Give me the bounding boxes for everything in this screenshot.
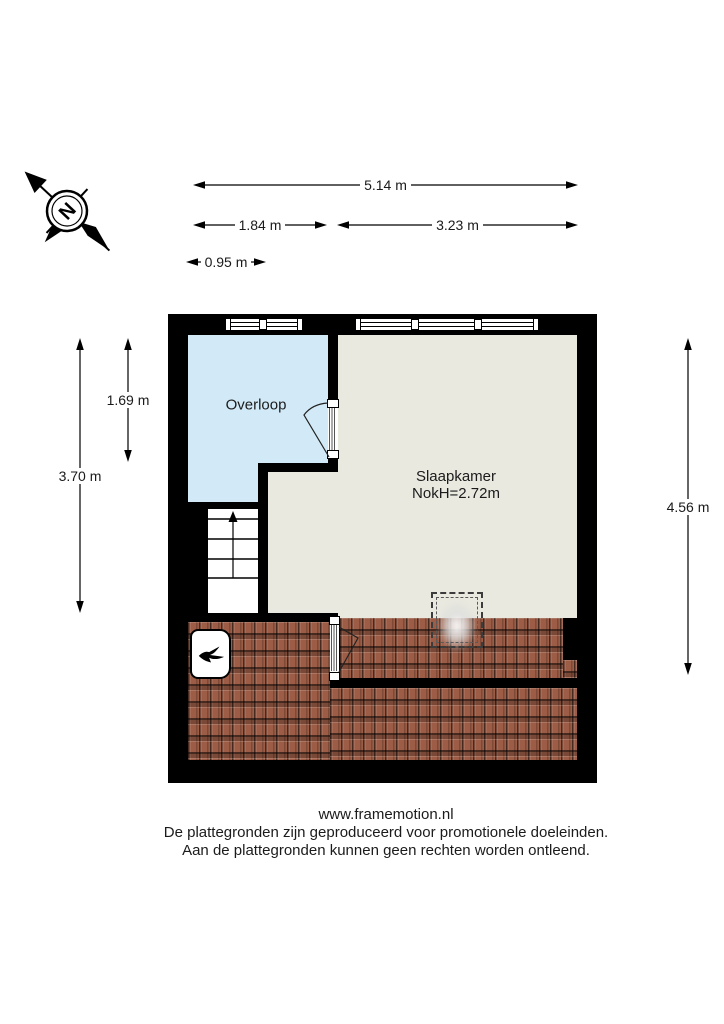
room-label-slaapkamer: Slaapkamer NokH=2.72m — [412, 468, 500, 502]
dim-label: 1.84 m — [235, 217, 286, 233]
footer-website: www.framemotion.nl — [164, 806, 608, 824]
dim-label: 5.14 m — [360, 177, 411, 193]
dim-label: 0.95 m — [201, 254, 252, 270]
slaapkamer-name: Slaapkamer — [412, 468, 500, 485]
dim-width-slaapkamer: 3.23 m — [337, 217, 578, 233]
slaapkamer-ridge-height: NokH=2.72m — [412, 485, 500, 502]
compass-icon: N — [5, 149, 129, 273]
dim-label: 3.70 m — [55, 468, 106, 484]
door-swing-overlay — [168, 314, 597, 783]
dim-height-overloop: 1.69 m — [88, 338, 168, 462]
dim-label: 3.23 m — [432, 217, 483, 233]
skylight-inner-frame — [436, 597, 478, 643]
skylight-dormer — [431, 592, 483, 648]
dim-height-right: 4.56 m — [648, 338, 724, 675]
footer: www.framemotion.nl De plattegronden zijn… — [164, 806, 608, 860]
footer-disclaimer-1: De plattegronden zijn geproduceerd voor … — [164, 824, 608, 842]
dim-width-overloop: 1.84 m — [193, 217, 327, 233]
floorplan-page: N 5.14 m 1.84 m 3.23 m 0.95 m — [0, 0, 724, 1024]
footer-disclaimer-2: Aan de plattegronden kunnen geen rechten… — [164, 842, 608, 860]
dim-label: 1.69 m — [103, 392, 154, 408]
bird-icon — [196, 643, 226, 665]
dim-width-stairs: 0.95 m — [186, 254, 266, 270]
bird-vent — [190, 629, 231, 679]
room-label-overloop: Overloop — [226, 397, 287, 414]
dim-width-total: 5.14 m — [193, 177, 578, 193]
dim-label: 4.56 m — [663, 499, 714, 515]
